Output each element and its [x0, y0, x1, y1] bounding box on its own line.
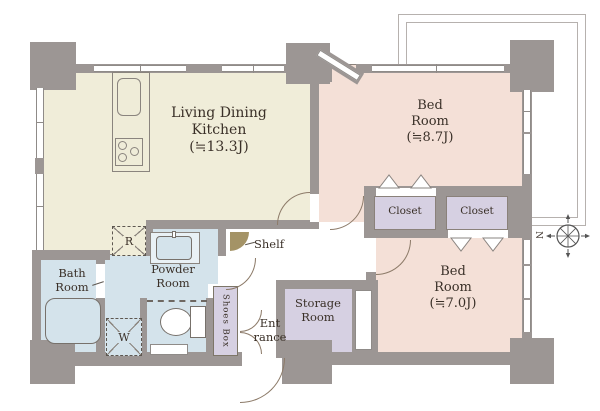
window-top-bedroom1	[372, 65, 504, 72]
door-gap-bedroom2	[366, 238, 376, 272]
shoes-box-label: Shoes Box	[221, 294, 231, 348]
window-left-divider	[35, 158, 44, 174]
wall-bottom-right	[330, 352, 516, 365]
bath-label-line2: Room	[46, 280, 98, 294]
floor-plan: R W Shoes Box	[0, 0, 600, 411]
ldk-label-line1: Living Dining	[148, 105, 290, 122]
ldk-label: Living Dining Kitchen (≒13.3J)	[148, 105, 290, 156]
bedroom1-area: (≒8.7J)	[388, 130, 472, 146]
window-top-ldk-2-tick	[253, 64, 254, 73]
ldk-area: (≒13.3J)	[148, 139, 290, 156]
ldk-label-line2: Kitchen	[148, 122, 290, 139]
stove-burner-2	[118, 153, 127, 162]
bath-label-line1: Bath	[46, 266, 98, 280]
toilet-bowl-icon	[160, 308, 192, 336]
refrigerator-letter: R	[123, 236, 135, 247]
window-left-tick2	[36, 206, 44, 207]
powder-label-line2: Room	[134, 276, 212, 290]
entrance-label: Ent rance	[246, 316, 294, 344]
refrigerator-marker: R	[112, 226, 146, 256]
door-gap-ldk	[310, 194, 319, 222]
sliding-door-toilet	[147, 300, 207, 302]
door-arc-entrance-main	[240, 358, 285, 403]
storage-door	[355, 290, 372, 350]
powder-label-line1: Powder	[134, 262, 212, 276]
bath-label: Bath Room	[46, 266, 98, 294]
bedroom2-label-line2: Room	[406, 280, 500, 296]
powder-label: Powder Room	[134, 262, 212, 290]
entrance-label-line1: Ent	[246, 316, 294, 330]
window-left-tick1	[36, 122, 44, 123]
stove-burner-1	[118, 141, 127, 150]
window-right-4	[523, 266, 531, 298]
compass-icon	[534, 210, 594, 262]
closet1-folding-door-icon	[378, 174, 434, 189]
closet1-door-gap	[376, 188, 436, 196]
service-block	[282, 340, 332, 384]
storage-label-line1: Storage	[285, 296, 351, 310]
storage-label-line2: Room	[285, 310, 351, 324]
kitchen-sink-icon	[117, 78, 141, 116]
window-right-3	[523, 240, 531, 264]
compass-north-label: N	[533, 231, 543, 239]
stove-burner-3	[130, 147, 139, 156]
pillar-bottom-right	[510, 338, 554, 384]
entrance-label-line2: rance	[246, 330, 294, 344]
pillar-top-right	[510, 40, 554, 92]
closet2-folding-door-icon	[450, 237, 506, 252]
wall-ldk-bedroom1	[310, 64, 319, 194]
closet1-label: Closet	[374, 205, 436, 218]
bedroom1-label-line1: Bed	[388, 98, 472, 114]
bathtub-icon	[45, 298, 101, 344]
toilet-tank-icon	[190, 306, 206, 338]
bedroom1-label: Bed Room (≒8.7J)	[388, 98, 472, 146]
window-right-5	[523, 300, 531, 332]
bedroom1-label-line2: Room	[388, 114, 472, 130]
bedroom2-label-line1: Bed	[406, 264, 500, 280]
vanity-sink-icon	[156, 236, 192, 260]
window-top-bedroom1-tick	[436, 64, 437, 73]
closet2-label: Closet	[446, 205, 508, 218]
shelf-label: Shelf	[254, 237, 298, 251]
bottom-wall-opening	[150, 344, 188, 355]
bedroom2-area: (≒7.0J)	[406, 296, 500, 312]
window-right-1-tick	[523, 111, 531, 112]
shoes-box: Shoes Box	[213, 286, 238, 356]
compass: N	[534, 210, 594, 262]
pillar-bottom-left	[30, 340, 75, 384]
faucet-icon	[172, 231, 176, 238]
washing-machine-marker: W	[106, 318, 142, 356]
window-right-2	[523, 134, 531, 174]
washing-machine-letter: W	[116, 332, 131, 343]
bedroom2-label: Bed Room (≒7.0J)	[406, 264, 500, 312]
storage-label: Storage Room	[285, 296, 351, 324]
